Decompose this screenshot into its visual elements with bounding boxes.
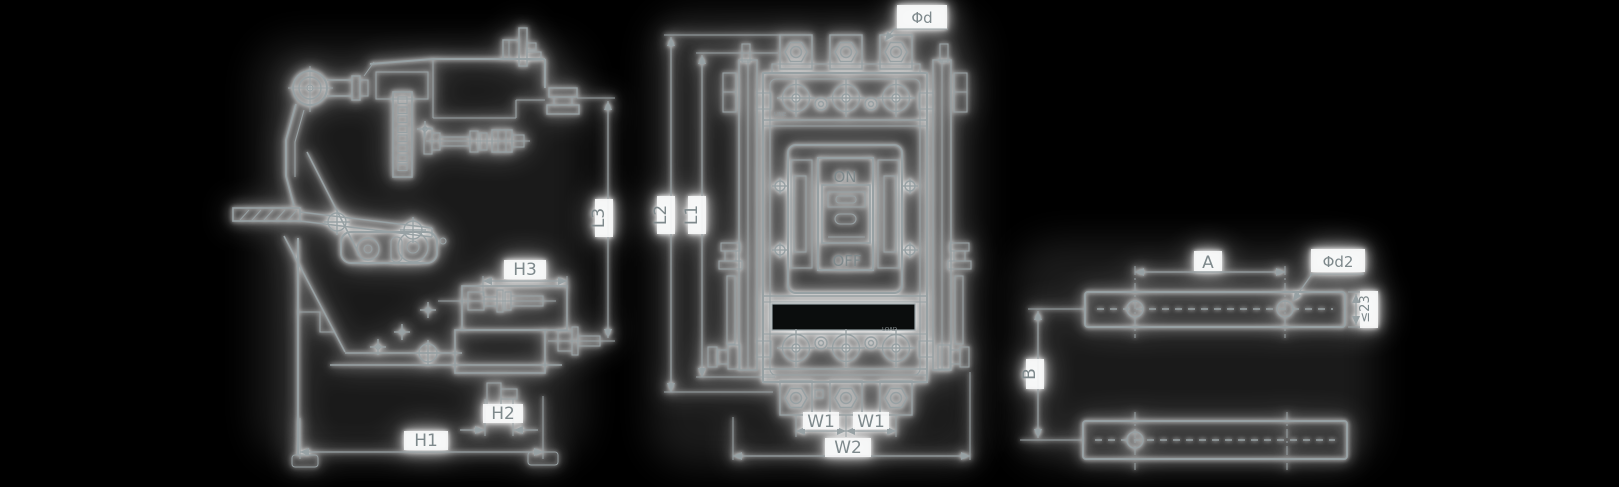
dim-label-h3: H3 xyxy=(513,260,537,280)
dim-label-a: A xyxy=(1202,253,1214,273)
operating-rod xyxy=(233,208,432,243)
top-terminal-bolt xyxy=(503,28,579,114)
dimension-h3: H3 xyxy=(483,260,567,296)
mounting-bar-bottom xyxy=(1083,412,1347,470)
hole-cross-marker xyxy=(417,121,433,137)
dim-label-l3: L3 xyxy=(589,208,609,228)
dimension-phi-d2: Φd2 xyxy=(1293,249,1365,301)
dim-label-bar-height: ≤23 xyxy=(1358,295,1373,322)
feet xyxy=(292,452,558,467)
dim-label-phi-d2: Φd2 xyxy=(1323,253,1354,271)
drawing-canvas: H3 H2 H1 L3 xyxy=(0,0,1619,487)
mounting-bar-top xyxy=(1085,266,1345,338)
dim-label-w1-right: W1 xyxy=(857,412,885,432)
terminal-clamps-bottom xyxy=(777,329,915,367)
dim-label-h2: H2 xyxy=(491,404,515,424)
rod-pin xyxy=(400,217,426,243)
mounting-view: A Φd2 ≤23 B xyxy=(1020,249,1378,470)
dim-label-l1: L1 xyxy=(682,205,702,225)
rear-bracket xyxy=(438,286,567,373)
dimension-l3: L3 xyxy=(577,98,615,341)
line-side-marking: LINE xyxy=(774,112,787,118)
dimension-h2: H2 xyxy=(460,399,538,436)
breaker-dimension-drawing: H3 H2 H1 L3 xyxy=(0,0,1619,487)
middle-bolt-assembly xyxy=(424,128,530,154)
terminal-clamps-top: LINE xyxy=(774,79,915,118)
top-terminals xyxy=(772,35,920,73)
dim-label-b: B xyxy=(1020,368,1040,380)
front-view: LINE ON OFF xyxy=(651,5,971,460)
nameplate: LOAD xyxy=(772,304,915,333)
dimension-a: A xyxy=(1135,251,1285,273)
switch-off-label: OFF xyxy=(832,252,861,270)
switch-on-label: ON xyxy=(833,168,856,186)
housing-outline xyxy=(284,59,562,455)
rod-pin xyxy=(324,209,350,235)
load-side-marking: LOAD xyxy=(882,327,897,333)
dim-label-w1-left: W1 xyxy=(807,412,835,432)
pivot-mechanism xyxy=(288,62,374,112)
dimension-w2: W2 xyxy=(733,372,970,460)
mounting-hole-markers xyxy=(370,302,441,366)
dimension-bar-height: ≤23 xyxy=(1348,291,1378,328)
dim-label-l2: L2 xyxy=(651,205,671,225)
bottom-terminals xyxy=(780,381,912,415)
dimension-b: B xyxy=(1020,309,1086,440)
dim-label-h1: H1 xyxy=(414,431,438,451)
dimension-w1: W1 W1 xyxy=(796,412,896,437)
dim-label-phi-d: Φd xyxy=(911,9,932,27)
dim-label-w2: W2 xyxy=(834,438,862,458)
trip-unit-ladder xyxy=(393,92,433,177)
breaker-body xyxy=(757,73,933,382)
side-view: H3 H2 H1 L3 xyxy=(233,28,615,467)
toggle-switch: ON OFF xyxy=(772,145,918,293)
